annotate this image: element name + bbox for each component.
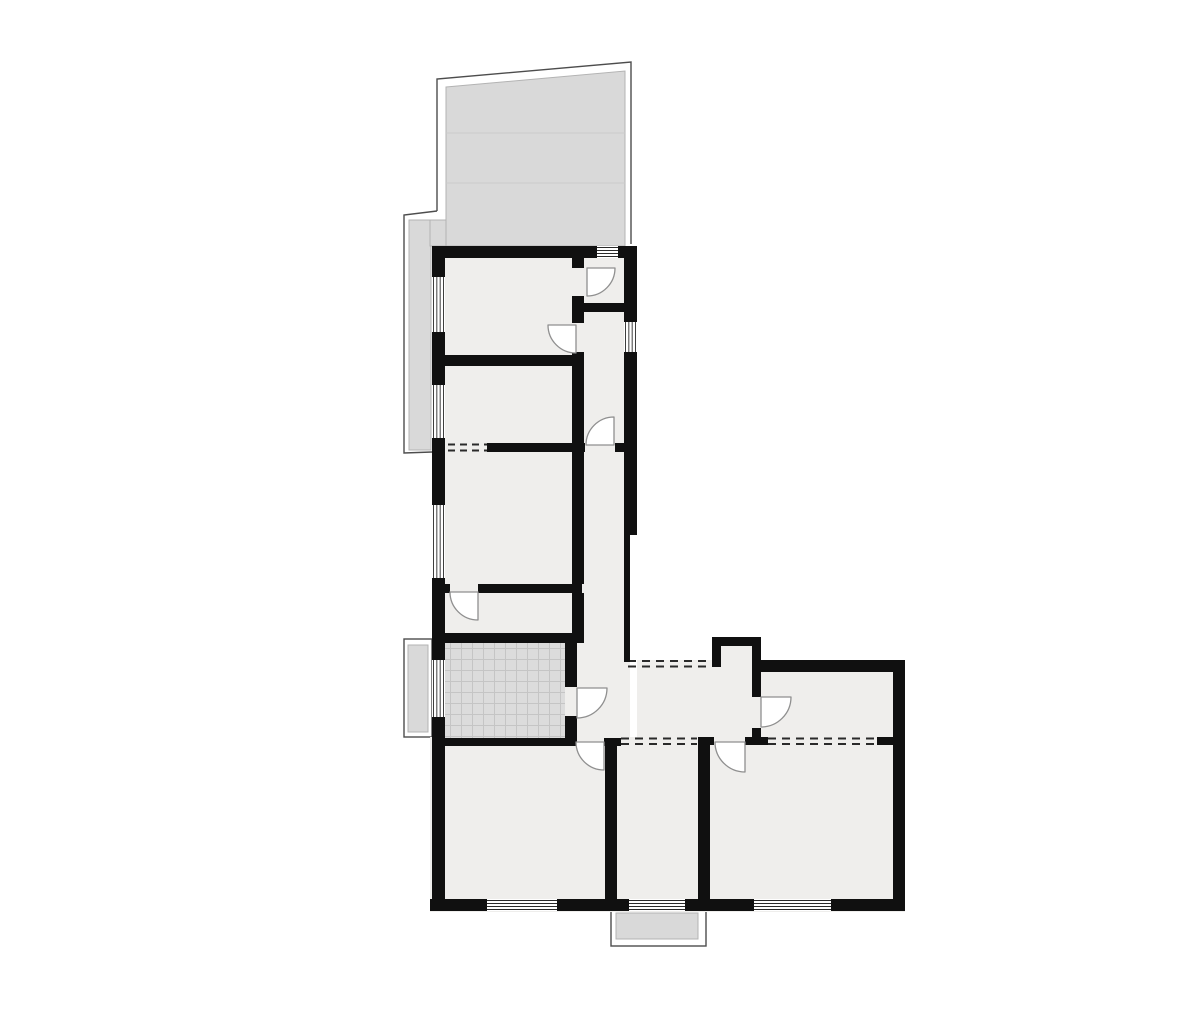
wall — [685, 899, 754, 911]
wall — [487, 443, 585, 452]
floor-plan — [0, 0, 1200, 1010]
kitchen-tiled-floor — [445, 643, 565, 738]
wall — [432, 246, 445, 277]
bottom-balcony-deck — [616, 913, 698, 939]
wall — [432, 438, 445, 505]
wall — [445, 355, 582, 366]
wall — [478, 584, 582, 593]
floor-bottom-block — [430, 737, 905, 912]
wall — [432, 738, 577, 746]
wall — [432, 332, 445, 385]
wall — [557, 899, 629, 911]
wall — [698, 742, 710, 903]
wall — [565, 643, 577, 687]
wall — [445, 584, 450, 593]
wall — [752, 660, 905, 672]
wall — [698, 737, 714, 745]
floor-plan-svg — [0, 0, 1200, 1010]
wall — [572, 452, 584, 584]
wall — [745, 737, 768, 745]
wall — [893, 660, 905, 910]
wall — [580, 303, 637, 312]
wall — [432, 246, 597, 258]
terrace-deck-strip — [409, 220, 431, 450]
wall — [432, 578, 445, 660]
wall — [877, 737, 893, 745]
left-balcony-deck — [408, 645, 428, 732]
wall — [572, 593, 584, 633]
wall — [565, 716, 577, 745]
wall — [624, 535, 630, 662]
wall — [572, 258, 584, 268]
wall — [430, 899, 487, 911]
wall — [605, 742, 617, 903]
wall — [445, 633, 584, 643]
terrace-deck — [446, 71, 625, 246]
wall — [831, 899, 905, 911]
terrace-deck-corner — [430, 220, 446, 246]
wall — [615, 443, 637, 452]
wall — [572, 352, 584, 443]
